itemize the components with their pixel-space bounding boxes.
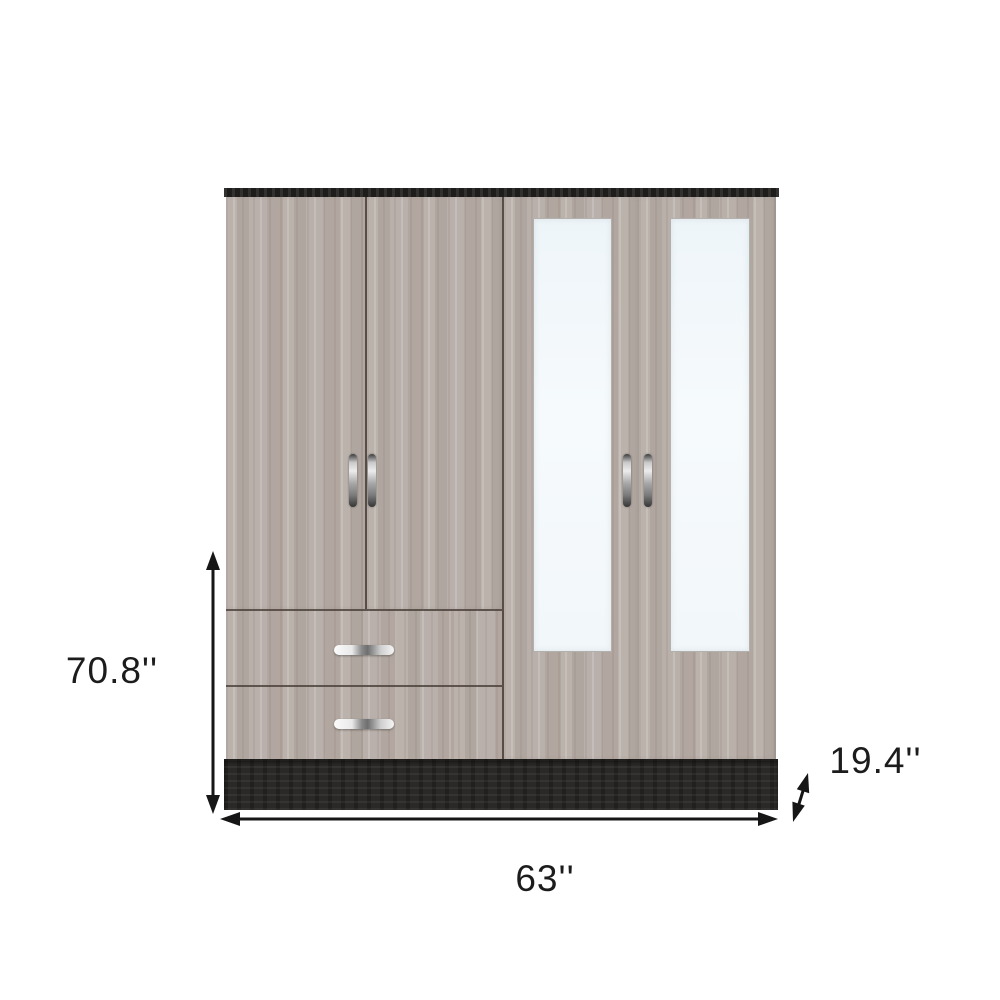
mirror-left (533, 218, 612, 652)
drawer-handle-bottom (334, 719, 394, 729)
left-door-handle-right (368, 454, 376, 507)
left-door-handle-left (349, 454, 357, 507)
mirror-door-handle-left (623, 454, 631, 507)
left-door-right (367, 197, 504, 609)
product-dimension-diagram: 70.8'' 63'' 19.4'' (0, 0, 1000, 1000)
width-dimension-label: 63'' (488, 858, 602, 900)
drawer-handle-top (334, 645, 394, 655)
mirror-right (670, 218, 750, 652)
height-dimension-label: 70.8'' (52, 650, 172, 692)
depth-dimension-label: 19.4'' (813, 740, 938, 782)
mirror-door-handle-right (644, 454, 652, 507)
left-door-left (226, 197, 367, 609)
wardrobe-top-trim (224, 188, 779, 197)
wardrobe (0, 0, 1000, 1000)
wardrobe-base-plinth (224, 759, 778, 810)
